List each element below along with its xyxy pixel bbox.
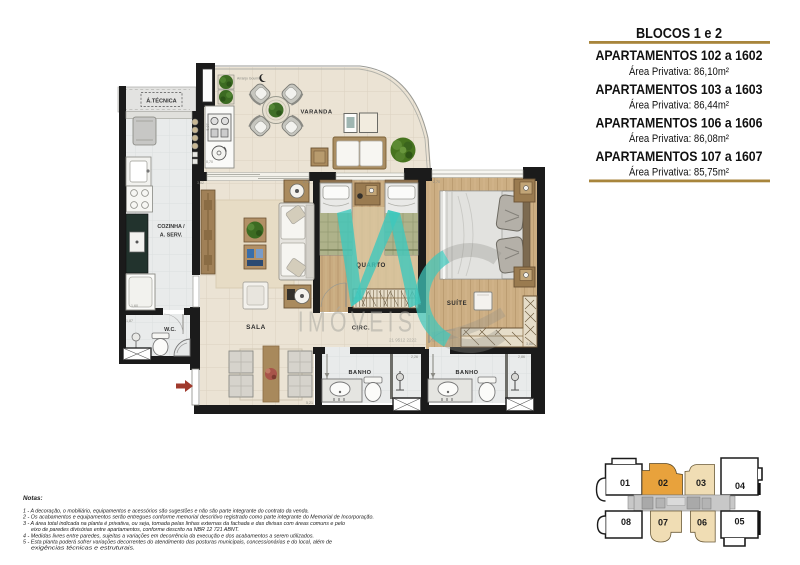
svg-text:Área Privativa: 85,75m²: Área Privativa: 85,75m²: [629, 166, 729, 179]
svg-text:APARTAMENTOS 102 a 1602: APARTAMENTOS 102 a 1602: [596, 47, 763, 63]
svg-text:APARTAMENTOS 103 a 1603: APARTAMENTOS 103 a 1603: [596, 81, 763, 97]
svg-text:BANHO: BANHO: [455, 370, 478, 376]
svg-text:0,70: 0,70: [206, 160, 213, 164]
svg-text:2,86: 2,86: [518, 355, 525, 359]
svg-text:03: 03: [696, 478, 706, 488]
svg-text:04: 04: [735, 481, 745, 491]
svg-text:08: 08: [621, 517, 631, 527]
svg-text:IMÓVEIS: IMÓVEIS: [298, 305, 416, 338]
svg-text:Á.TÉCNICA: Á.TÉCNICA: [146, 97, 176, 105]
svg-text:1 - A decoração, o mobiliário,: 1 - A decoração, o mobiliário, equipamen…: [23, 509, 309, 515]
svg-text:Área Privativa: 86,08m²: Área Privativa: 86,08m²: [629, 132, 729, 145]
svg-text:2,70: 2,70: [433, 180, 440, 184]
svg-text:2 - Os acabamentos e equipamen: 2 - Os acabamentos e equipamentos serão …: [22, 515, 374, 521]
svg-text:eixo de paredes divisórias ent: eixo de paredes divisórias entre apartam…: [31, 527, 239, 533]
svg-text:3,02: 3,02: [197, 181, 204, 185]
svg-text:01: 01: [620, 478, 630, 488]
svg-text:Arranjo Gourmet: Arranjo Gourmet: [237, 77, 262, 81]
svg-text:APARTAMENTOS 106 a 1606: APARTAMENTOS 106 a 1606: [596, 115, 763, 131]
svg-text:APARTAMENTOS 107 a 1607: APARTAMENTOS 107 a 1607: [596, 148, 763, 164]
svg-text:3,86: 3,86: [526, 342, 533, 346]
svg-text:07: 07: [658, 518, 668, 528]
svg-text:1,87: 1,87: [126, 319, 133, 323]
svg-text:5,21: 5,21: [306, 401, 313, 405]
svg-text:SUÍTE: SUÍTE: [447, 299, 467, 307]
svg-text:BLOCOS 1 e 2: BLOCOS 1 e 2: [636, 26, 722, 42]
svg-text:5,07: 5,07: [206, 124, 210, 131]
svg-text:Área Privativa: 86,10m²: Área Privativa: 86,10m²: [629, 65, 729, 78]
svg-text:COZINHA /: COZINHA /: [157, 224, 185, 230]
svg-text:5 - Esta planta poderá sofrer: 5 - Esta planta poderá sofrer variações …: [23, 540, 332, 546]
svg-text:2,26: 2,26: [411, 355, 418, 359]
svg-text:06: 06: [697, 518, 707, 528]
svg-text:05: 05: [734, 517, 744, 527]
svg-text:A. SERV.: A. SERV.: [160, 233, 183, 239]
svg-text:W.C.: W.C.: [164, 327, 176, 333]
svg-text:4 - Medidas livres entre pared: 4 - Medidas livres entre paredes, sujeit…: [23, 533, 314, 539]
svg-text:21 9512 2222: 21 9512 2222: [389, 338, 417, 343]
svg-text:02: 02: [658, 478, 668, 488]
svg-text:exigências técnicas e estrutur: exigências técnicas e estruturais.: [31, 546, 135, 552]
svg-text:3 - A área total indicada na p: 3 - A área total indicada na planta é pr…: [23, 521, 345, 527]
svg-text:VARANDA: VARANDA: [300, 110, 332, 116]
svg-text:1,60: 1,60: [131, 304, 138, 308]
svg-text:Notas:: Notas:: [23, 495, 43, 502]
svg-text:2,76: 2,76: [303, 180, 310, 184]
svg-text:Área Privativa: 86,44m²: Área Privativa: 86,44m²: [629, 99, 729, 112]
svg-text:SALA: SALA: [246, 324, 266, 331]
svg-text:BANHO: BANHO: [348, 370, 371, 376]
